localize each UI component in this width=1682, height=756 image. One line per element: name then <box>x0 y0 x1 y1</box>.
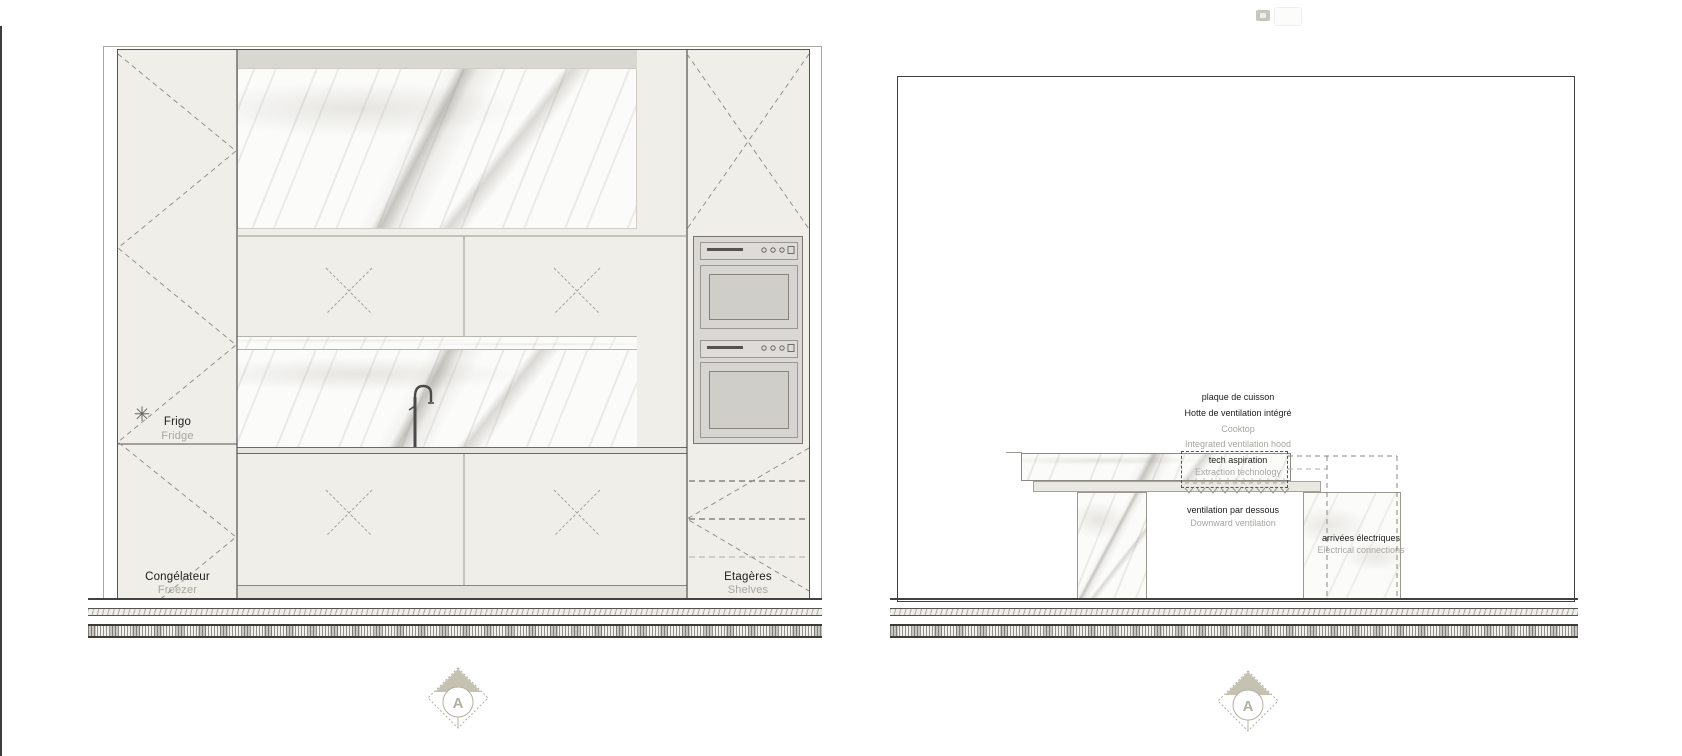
oven-top-controls <box>707 247 794 254</box>
upper-door-x-mark-left <box>326 268 372 314</box>
floor-hatch-band-right <box>890 608 1578 616</box>
floor-line-left <box>88 598 822 600</box>
island-linework <box>898 77 1574 601</box>
fridge-door-swing-dashes <box>118 54 236 598</box>
screenshot-tool-icon-dot <box>1260 13 1266 18</box>
base-door-x-mark-left <box>326 490 372 536</box>
oven-bottom-controls <box>707 345 794 352</box>
parquet-band-left <box>88 624 822 638</box>
drawing-canvas: ✳ Frigo Fridge Congélateur Freezer Etagè… <box>0 0 1682 756</box>
window-edge-line <box>0 26 2 756</box>
screenshot-tool-icon[interactable] <box>1256 10 1270 21</box>
floating-pill[interactable] <box>1274 7 1302 26</box>
section-marker-letter: A <box>1243 698 1254 715</box>
kitchen-elevation-panel: ✳ Frigo Fridge Congélateur Freezer Etagè… <box>117 49 810 599</box>
section-marker-letter: A <box>453 695 464 712</box>
parquet-band-right <box>890 624 1578 638</box>
upper-door-x-mark-right <box>554 268 600 314</box>
section-marker-right: A <box>1216 669 1280 733</box>
floor-hatch-band-left <box>88 608 822 616</box>
elevation-linework <box>118 50 809 598</box>
base-door-x-mark-right <box>554 490 600 536</box>
section-marker-left: A <box>426 666 490 730</box>
downdraft-arrows <box>1185 488 1289 493</box>
faucet-icon <box>409 386 434 447</box>
island-section-panel: plaque de cuisson Hotte de ventilation i… <box>897 76 1575 602</box>
